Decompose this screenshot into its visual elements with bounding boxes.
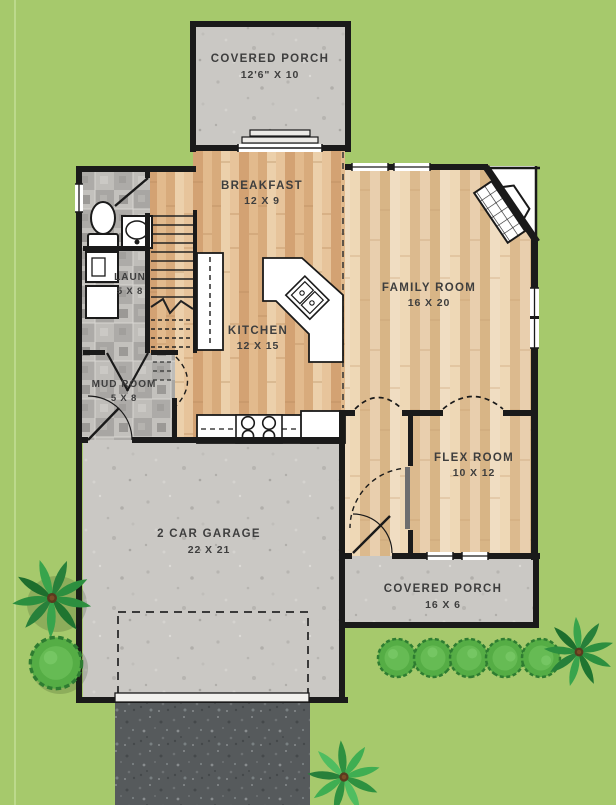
room-garage-floor — [83, 440, 339, 697]
room-dims-flex-room: 10 X 12 — [453, 467, 496, 479]
room-label-breakfast: BREAKFAST — [221, 180, 303, 192]
driveway — [115, 700, 310, 805]
wall-segment — [76, 166, 196, 172]
wall-segment — [488, 553, 540, 559]
wall-segment — [193, 210, 197, 353]
porch-steps — [242, 130, 318, 143]
wall-segment — [190, 21, 196, 152]
wall-segment — [408, 410, 413, 466]
window — [427, 552, 453, 560]
room-covered-porch-top-floor — [193, 24, 348, 148]
floor-plan: COVERED PORCH 12'6" X 10 BREAKFAST 12 X … — [0, 0, 616, 805]
wall-segment — [408, 530, 413, 558]
wall-segment — [172, 398, 177, 437]
room-label-flex-room: FLEX ROOM — [434, 452, 514, 464]
wall-segment — [345, 164, 352, 170]
wall-segment — [430, 164, 488, 170]
wall-segment — [339, 410, 355, 416]
window — [75, 184, 83, 212]
room-dims-garage: 22 X 21 — [188, 544, 231, 556]
toilet — [88, 202, 118, 248]
room-dims-mud-room: 5 X 8 — [111, 393, 137, 404]
window — [462, 552, 488, 560]
wall-segment — [345, 21, 351, 152]
garage-door — [115, 693, 309, 702]
room-dims-covered-porch-top: 12'6" X 10 — [241, 69, 300, 81]
wall-segment — [145, 166, 150, 178]
round-bush — [378, 639, 416, 677]
round-bush — [30, 637, 81, 688]
wall-segment — [145, 213, 150, 353]
wall-segment — [151, 350, 178, 355]
room-label-kitchen: KITCHEN — [228, 325, 288, 337]
window — [394, 163, 430, 171]
wall-segment — [388, 164, 394, 170]
wall-segment — [339, 622, 539, 628]
wall-segment — [83, 350, 105, 355]
wall-segment — [322, 145, 351, 151]
wall-segment — [132, 437, 345, 443]
wall-segment — [531, 348, 538, 560]
window — [530, 288, 539, 348]
room-label-family-room: FAMILY ROOM — [382, 282, 476, 294]
entry-door — [238, 144, 322, 152]
wall-segment — [76, 212, 82, 443]
pantry — [197, 253, 223, 350]
room-label-covered-porch-bottom: COVERED PORCH — [384, 583, 503, 595]
room-label-laundry: LAUN — [114, 272, 146, 283]
dryer — [86, 286, 118, 318]
room-dims-laundry: 5 X 8 — [117, 286, 143, 297]
room-label-covered-porch-top: COVERED PORCH — [211, 53, 330, 65]
room-dims-kitchen: 12 X 15 — [237, 340, 280, 352]
wall-segment — [453, 553, 462, 559]
wall-segment — [190, 21, 351, 27]
wall-segment — [339, 553, 352, 559]
wall-segment — [83, 246, 147, 251]
room-label-mud-room: MUD ROOM — [92, 379, 157, 390]
wall-segment — [190, 145, 238, 151]
room-label-garage: 2 CAR GARAGE — [157, 528, 261, 540]
wall-segment — [76, 166, 82, 184]
window — [352, 163, 388, 171]
room-dims-family-room: 16 X 20 — [408, 297, 451, 309]
wall-segment — [531, 238, 538, 288]
wall-segment — [503, 410, 538, 416]
room-dims-breakfast: 12 X 9 — [244, 195, 280, 207]
floor-plan-scene: COVERED PORCH 12'6" X 10 BREAKFAST 12 X … — [0, 0, 616, 805]
wall-segment — [533, 556, 539, 628]
room-dims-covered-porch-bottom: 16 X 6 — [425, 599, 461, 611]
